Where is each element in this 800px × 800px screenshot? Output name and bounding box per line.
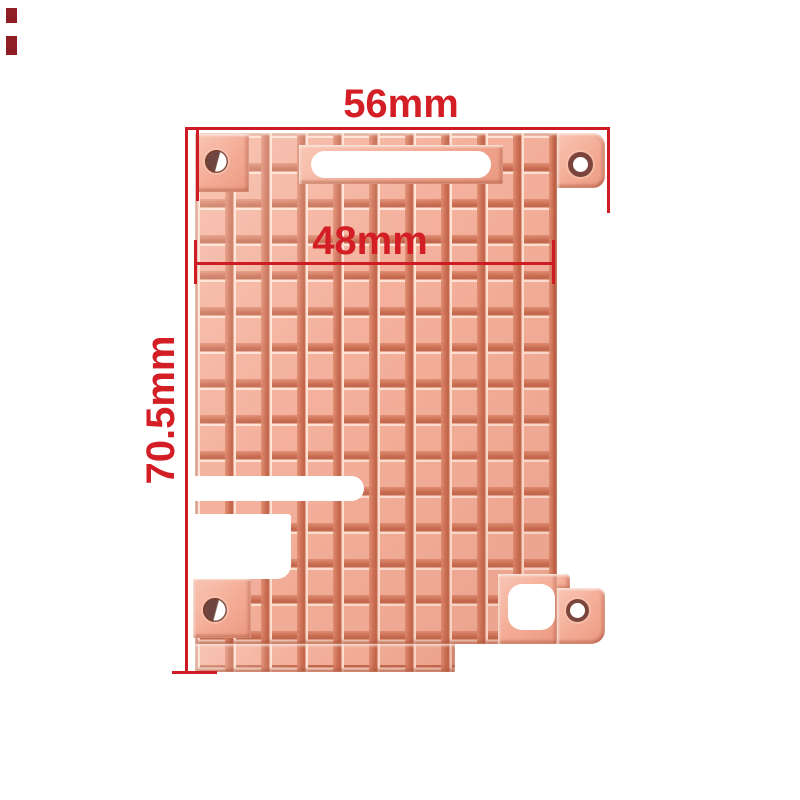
corner-cutout-left: [191, 514, 291, 579]
slot-cutout-top: [311, 151, 491, 178]
dimension-label-48mm: 48mm: [300, 219, 440, 263]
dimension-tick-70mm-bottom: [172, 671, 217, 674]
dimension-tick-56mm-left: [196, 127, 199, 201]
dimension-tick-48mm-right: [552, 240, 555, 284]
rounded-cutout-bottom-right: [508, 584, 555, 630]
dimension-label-70mm: 70.5mm: [139, 330, 183, 490]
notch-cutout-left: [191, 476, 364, 501]
dimension-line-70mm: [185, 127, 188, 674]
heatsink-bottom-left-extension: [195, 644, 455, 672]
corner-mark: [6, 36, 17, 55]
dimension-label-56mm: 56mm: [331, 82, 471, 126]
dimension-tick-56mm-right: [607, 127, 610, 213]
mounting-hole-top-right: [568, 152, 593, 177]
product-image: 56mm 48mm 70.5mm: [0, 0, 800, 800]
corner-mark: [6, 8, 17, 23]
dimension-tick-48mm-left: [194, 240, 197, 284]
dimension-line-56mm: [185, 127, 610, 130]
mounting-hole-top-left: [205, 150, 228, 173]
mounting-hole-bottom-left: [203, 598, 227, 622]
mounting-hole-bottom-right: [566, 599, 589, 622]
